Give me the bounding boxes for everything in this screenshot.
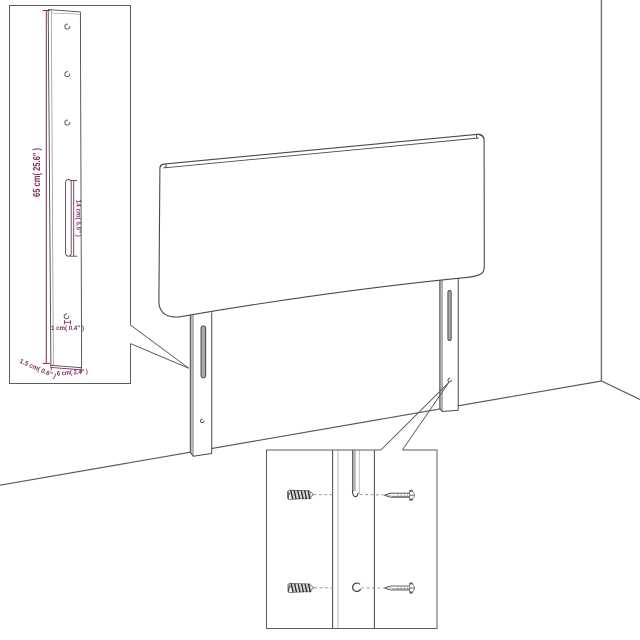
svg-text:65 cm( 25.6" ): 65 cm( 25.6" ) — [32, 148, 43, 197]
svg-text:14 cm( 5.5" ): 14 cm( 5.5" ) — [75, 200, 82, 237]
svg-text:1 cm( 0.4" ): 1 cm( 0.4" ) — [51, 325, 84, 332]
